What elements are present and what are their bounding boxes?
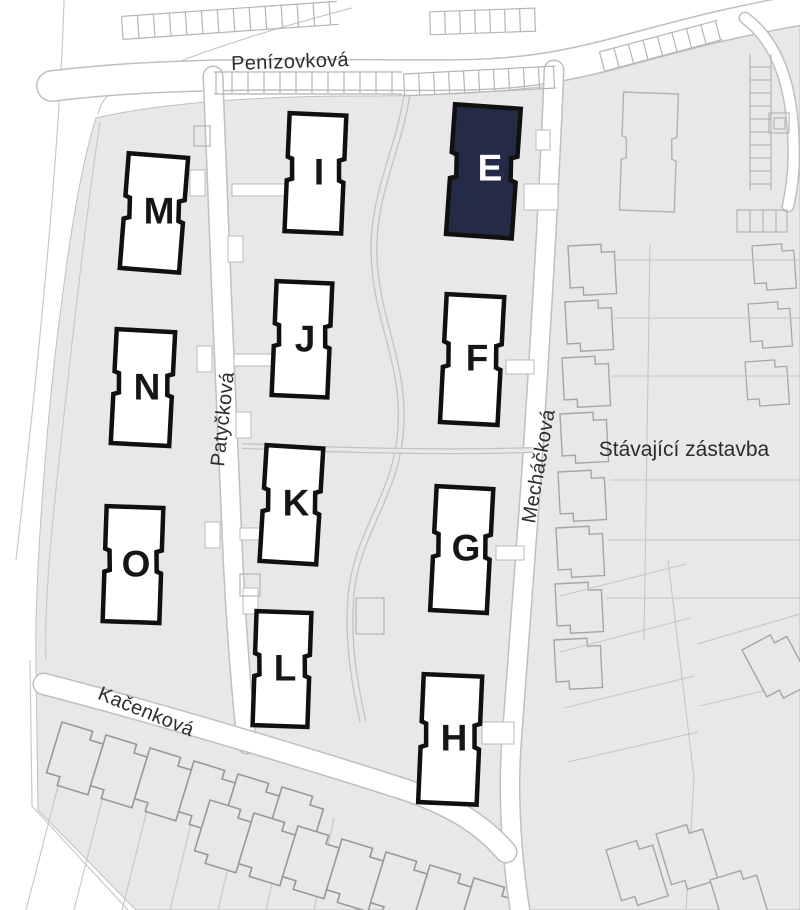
building-n-label: N bbox=[134, 367, 161, 408]
street-label-penizovkova: Penízovková bbox=[231, 49, 350, 75]
building-f-label: F bbox=[466, 338, 489, 379]
building-e-label: E bbox=[478, 148, 503, 189]
building-j[interactable]: J bbox=[272, 281, 333, 397]
building-k[interactable]: K bbox=[260, 445, 324, 564]
site-plan-map: E F G H I J K L M N O Penízovková bbox=[0, 0, 800, 910]
building-h[interactable]: H bbox=[418, 674, 482, 804]
building-g[interactable]: G bbox=[430, 486, 493, 613]
building-m-label: M bbox=[144, 191, 175, 232]
building-l[interactable]: L bbox=[253, 611, 312, 727]
building-n[interactable]: N bbox=[111, 329, 175, 446]
building-j-label: J bbox=[295, 319, 316, 360]
building-o[interactable]: O bbox=[103, 506, 164, 623]
building-h-label: H bbox=[441, 718, 468, 759]
building-k-label: K bbox=[283, 483, 310, 524]
building-e[interactable]: E bbox=[446, 104, 521, 238]
building-l-label: L bbox=[274, 648, 297, 689]
area-label-existing-development: Stávající zástavba bbox=[599, 438, 770, 461]
building-g-label: G bbox=[452, 528, 481, 569]
building-i-label: I bbox=[314, 152, 324, 193]
site-plan: E F G H I J K L M N O Penízovková bbox=[0, 0, 800, 910]
building-f[interactable]: F bbox=[440, 294, 504, 425]
building-o-label: O bbox=[122, 544, 151, 585]
building-m[interactable]: M bbox=[120, 153, 188, 272]
building-i[interactable]: I bbox=[285, 113, 347, 233]
